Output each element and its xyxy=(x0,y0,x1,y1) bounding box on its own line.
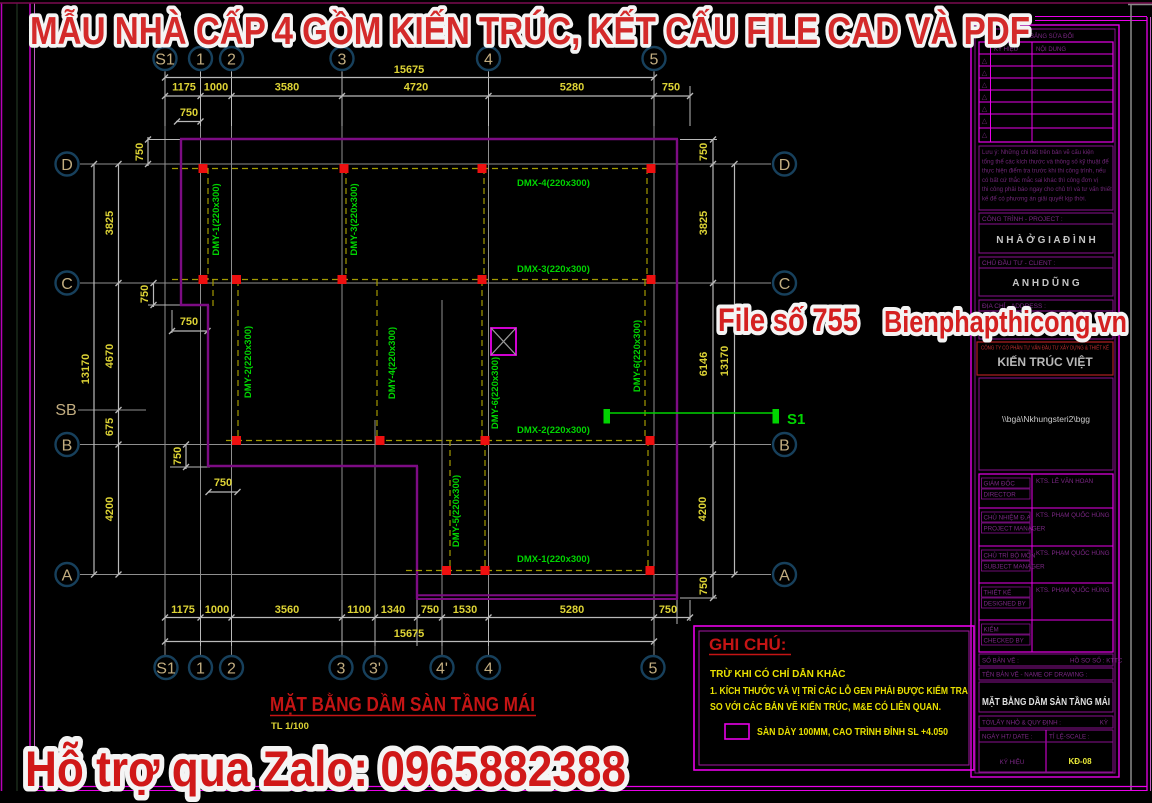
svg-text:1175: 1175 xyxy=(171,604,195,616)
svg-text:S1: S1 xyxy=(155,51,175,68)
svg-text:CHỦ TRÌ BỘ MÔN: CHỦ TRÌ BỘ MÔN xyxy=(984,553,1036,560)
svg-text:750: 750 xyxy=(421,604,439,616)
svg-text:thi công phải báo ngay cho chủ: thi công phải báo ngay cho chủ trì và tư… xyxy=(982,186,1112,193)
svg-text:TL 1/100: TL 1/100 xyxy=(271,721,309,732)
svg-text:△: △ xyxy=(982,118,988,125)
svg-text:có bất cứ thắc mắc sai khác th: có bất cứ thắc mắc sai khác thì công đơn… xyxy=(982,177,1098,184)
svg-text:KTS. PHẠM QUỐC HÙNG: KTS. PHẠM QUỐC HÙNG xyxy=(1036,587,1110,594)
svg-text:KÝ HIỆU: KÝ HIỆU xyxy=(1000,758,1025,766)
svg-text:DMX-2(220x300): DMX-2(220x300) xyxy=(517,425,590,436)
svg-text:D: D xyxy=(779,157,791,174)
svg-text:4': 4' xyxy=(436,660,448,677)
svg-text:KTS. PHẠM QUỐC HÙNG: KTS. PHẠM QUỐC HÙNG xyxy=(1036,512,1110,519)
svg-text:MẶT BẰNG DẦM SÀN TẦNG MÁI: MẶT BẰNG DẦM SÀN TẦNG MÁI xyxy=(982,697,1110,708)
svg-text:1100: 1100 xyxy=(347,604,371,616)
svg-text:6146: 6146 xyxy=(698,352,710,376)
svg-text:KIỂM: KIỂM xyxy=(984,627,999,634)
svg-text:4: 4 xyxy=(484,660,493,677)
svg-text:PROJECT MANAGER: PROJECT MANAGER xyxy=(984,526,1046,533)
svg-text:SUBJECT MANAGER: SUBJECT MANAGER xyxy=(984,564,1046,571)
svg-text:BẢNG SỬA ĐỔI: BẢNG SỬA ĐỔI xyxy=(1030,33,1074,40)
svg-text:750: 750 xyxy=(698,143,710,161)
svg-text:NGÀY HT/ DATE :: NGÀY HT/ DATE : xyxy=(982,734,1033,741)
svg-text:B: B xyxy=(62,437,73,454)
svg-text:5280: 5280 xyxy=(560,604,584,616)
svg-text:File số 755: File số 755 xyxy=(718,302,858,338)
svg-text:△: △ xyxy=(982,132,988,139)
svg-text:kế để có phương án giải quyết: kế để có phương án giải quyết kịp thời. xyxy=(982,196,1087,203)
svg-text:S1: S1 xyxy=(156,660,176,677)
svg-text:13170: 13170 xyxy=(80,354,92,385)
svg-text:4670: 4670 xyxy=(104,344,116,368)
svg-text:5: 5 xyxy=(649,660,658,677)
svg-text:TRỪ KHI CÓ CHỈ DẪN KHÁC: TRỪ KHI CÓ CHỈ DẪN KHÁC xyxy=(710,667,846,680)
svg-text:4: 4 xyxy=(484,51,493,68)
svg-text:△: △ xyxy=(982,82,988,89)
svg-text:1: 1 xyxy=(196,660,205,677)
svg-text:△: △ xyxy=(982,94,988,101)
svg-text:Bienphapthicong.vn: Bienphapthicong.vn xyxy=(884,304,1127,339)
svg-text:15675: 15675 xyxy=(394,64,425,76)
svg-text:3': 3' xyxy=(369,660,381,677)
svg-text:S1: S1 xyxy=(787,411,805,428)
svg-text:DESIGNED BY: DESIGNED BY xyxy=(984,601,1026,608)
svg-text:DMY-6(220x300): DMY-6(220x300) xyxy=(632,320,643,392)
svg-text:TỜ/LẤY NHỎ & QUY ĐỊNH :: TỜ/LẤY NHỎ & QUY ĐỊNH : xyxy=(982,720,1061,727)
svg-text:SB: SB xyxy=(55,402,76,419)
svg-text:KTS. PHẠM QUỐC HÙNG: KTS. PHẠM QUỐC HÙNG xyxy=(1036,550,1110,557)
svg-text:DMY-5(220x300): DMY-5(220x300) xyxy=(451,475,462,547)
svg-text:750: 750 xyxy=(134,143,146,161)
svg-text:KIẾN TRÚC VIỆT: KIẾN TRÚC VIỆT xyxy=(997,354,1093,369)
svg-text:5: 5 xyxy=(650,51,659,68)
svg-text:△: △ xyxy=(982,58,988,65)
svg-text:DMX-1(220x300): DMX-1(220x300) xyxy=(517,554,590,565)
svg-text:750: 750 xyxy=(139,285,151,303)
svg-text:750: 750 xyxy=(659,604,677,616)
svg-text:KTS. LÊ VĂN HOAN: KTS. LÊ VĂN HOAN xyxy=(1036,477,1093,485)
svg-text:MẶT BẰNG DẦM SÀN TẦNG MÁI: MẶT BẰNG DẦM SÀN TẦNG MÁI xyxy=(270,692,535,716)
svg-text:15675: 15675 xyxy=(394,628,425,640)
svg-text:1175: 1175 xyxy=(172,82,196,94)
svg-text:4720: 4720 xyxy=(404,82,428,94)
svg-text:Lưu ý: Những chi tiết trên bản: Lưu ý: Những chi tiết trên bản vẽ cấu ki… xyxy=(982,150,1094,156)
svg-text:THIẾT KẾ: THIẾT KẾ xyxy=(984,590,1012,597)
svg-text:1530: 1530 xyxy=(453,604,477,616)
svg-text:750: 750 xyxy=(180,107,198,119)
svg-text:675: 675 xyxy=(104,418,116,436)
svg-text:KĐ-08: KĐ-08 xyxy=(1068,757,1092,766)
svg-text:DMY-6(220x300): DMY-6(220x300) xyxy=(490,357,501,429)
svg-text:tổng thể các kích thước và thô: tổng thể các kích thước và thông số kỹ t… xyxy=(982,158,1109,165)
svg-text:CÔNG TRÌNH - PROJECT :: CÔNG TRÌNH - PROJECT : xyxy=(982,214,1063,223)
svg-text:SÀN DÀY 100MM, CAO TRÌNH ĐỈNH: SÀN DÀY 100MM, CAO TRÌNH ĐỈNH SL +4.050 xyxy=(757,725,948,738)
svg-text:1000: 1000 xyxy=(205,604,229,616)
svg-text:1. KÍCH THƯỚC VÀ VỊ TRÍ CÁC LỖ: 1. KÍCH THƯỚC VÀ VỊ TRÍ CÁC LỖ GEN PHẢI … xyxy=(710,684,968,697)
svg-text:Hỗ trợ qua Zalo: 0965882388: Hỗ trợ qua Zalo: 0965882388 xyxy=(25,741,626,797)
svg-text:DMX-3(220x300): DMX-3(220x300) xyxy=(517,264,590,275)
svg-text:750: 750 xyxy=(662,82,680,94)
svg-text:3825: 3825 xyxy=(698,211,710,235)
svg-text:3580: 3580 xyxy=(275,82,299,94)
svg-text:3: 3 xyxy=(337,660,346,677)
svg-text:B: B xyxy=(779,437,790,454)
svg-text:DMX-4(220x300): DMX-4(220x300) xyxy=(517,178,590,189)
svg-text:HỒ SƠ SỐ : KTTC: HỒ SƠ SỐ : KTTC xyxy=(1070,658,1123,665)
svg-text:1000: 1000 xyxy=(204,82,228,94)
svg-text:KỲ: KỲ xyxy=(1100,720,1108,727)
svg-text:DMY-2(220x300): DMY-2(220x300) xyxy=(243,326,254,398)
svg-text:C: C xyxy=(61,276,73,293)
svg-text:GHI CHÚ:: GHI CHÚ: xyxy=(709,635,786,654)
svg-text:CHỦ NHIỆM Đ.A: CHỦ NHIỆM Đ.A xyxy=(984,514,1032,522)
svg-text:N H À Ở G I A Đ Ì N H: N H À Ở G I A Đ Ì N H xyxy=(996,233,1095,246)
svg-text:2: 2 xyxy=(227,660,236,677)
svg-text:A: A xyxy=(62,567,73,584)
svg-text:CÔNG TY CỔ PHẦN TƯ VẤN ĐẦU TƯ: CÔNG TY CỔ PHẦN TƯ VẤN ĐẦU TƯ XÂY DỰNG &… xyxy=(981,345,1109,352)
svg-text:750: 750 xyxy=(698,577,710,595)
svg-text:C: C xyxy=(779,276,791,293)
svg-text:D: D xyxy=(61,157,73,174)
svg-text:SO VỚI CÁC BẢN VẼ KIẾN TRÚC,: SO VỚI CÁC BẢN VẼ KIẾN TRÚC, M&E CÓ LIÊN… xyxy=(710,700,941,713)
svg-text:thực hiện điểm tra trước khi t: thực hiện điểm tra trước khi thi công tr… xyxy=(982,168,1106,175)
svg-text:DIRECTOR: DIRECTOR xyxy=(984,492,1017,499)
svg-text:TÊN BẢN VẼ - NAME OF DRAWING :: TÊN BẢN VẼ - NAME OF DRAWING : xyxy=(982,671,1088,679)
svg-text:3825: 3825 xyxy=(104,211,116,235)
svg-text:4200: 4200 xyxy=(104,497,116,521)
svg-text:TỈ LỆ-SCALE :: TỈ LỆ-SCALE : xyxy=(1049,733,1090,741)
svg-text:NỘI DUNG: NỘI DUNG xyxy=(1036,46,1066,53)
svg-text:SỐ BẢN VẼ :: SỐ BẢN VẼ : xyxy=(982,658,1019,665)
svg-text:A: A xyxy=(779,567,790,584)
svg-text:3560: 3560 xyxy=(275,604,299,616)
svg-text:2: 2 xyxy=(227,51,236,68)
svg-text:1340: 1340 xyxy=(381,604,405,616)
svg-text:DMY-4(220x300): DMY-4(220x300) xyxy=(387,327,398,399)
svg-text:GIÁM ĐỐC: GIÁM ĐỐC xyxy=(984,481,1016,488)
svg-text:3: 3 xyxy=(338,51,347,68)
svg-text:5280: 5280 xyxy=(560,82,584,94)
svg-text:CHECKED BY: CHECKED BY xyxy=(984,638,1024,645)
svg-text:\\bgà\Nkhungsteri2\bgg: \\bgà\Nkhungsteri2\bgg xyxy=(1002,414,1090,424)
svg-text:△: △ xyxy=(982,106,988,113)
svg-text:MẪU NHÀ CẤP 4 GỒM KIẾN TRÚC, K: MẪU NHÀ CẤP 4 GỒM KIẾN TRÚC, KẾT CẤU FIL… xyxy=(30,9,1030,53)
svg-text:DMY-1(220x300): DMY-1(220x300) xyxy=(211,183,222,255)
svg-text:1: 1 xyxy=(196,51,205,68)
svg-text:4200: 4200 xyxy=(697,497,709,521)
svg-text:A N H D Ũ N G: A N H D Ũ N G xyxy=(1012,276,1080,289)
svg-text:13170: 13170 xyxy=(719,346,731,377)
svg-text:750: 750 xyxy=(172,447,184,465)
svg-text:△: △ xyxy=(982,70,988,77)
svg-text:750: 750 xyxy=(214,477,232,489)
svg-text:DMY-3(220x300): DMY-3(220x300) xyxy=(349,183,360,255)
svg-text:750: 750 xyxy=(180,316,198,328)
